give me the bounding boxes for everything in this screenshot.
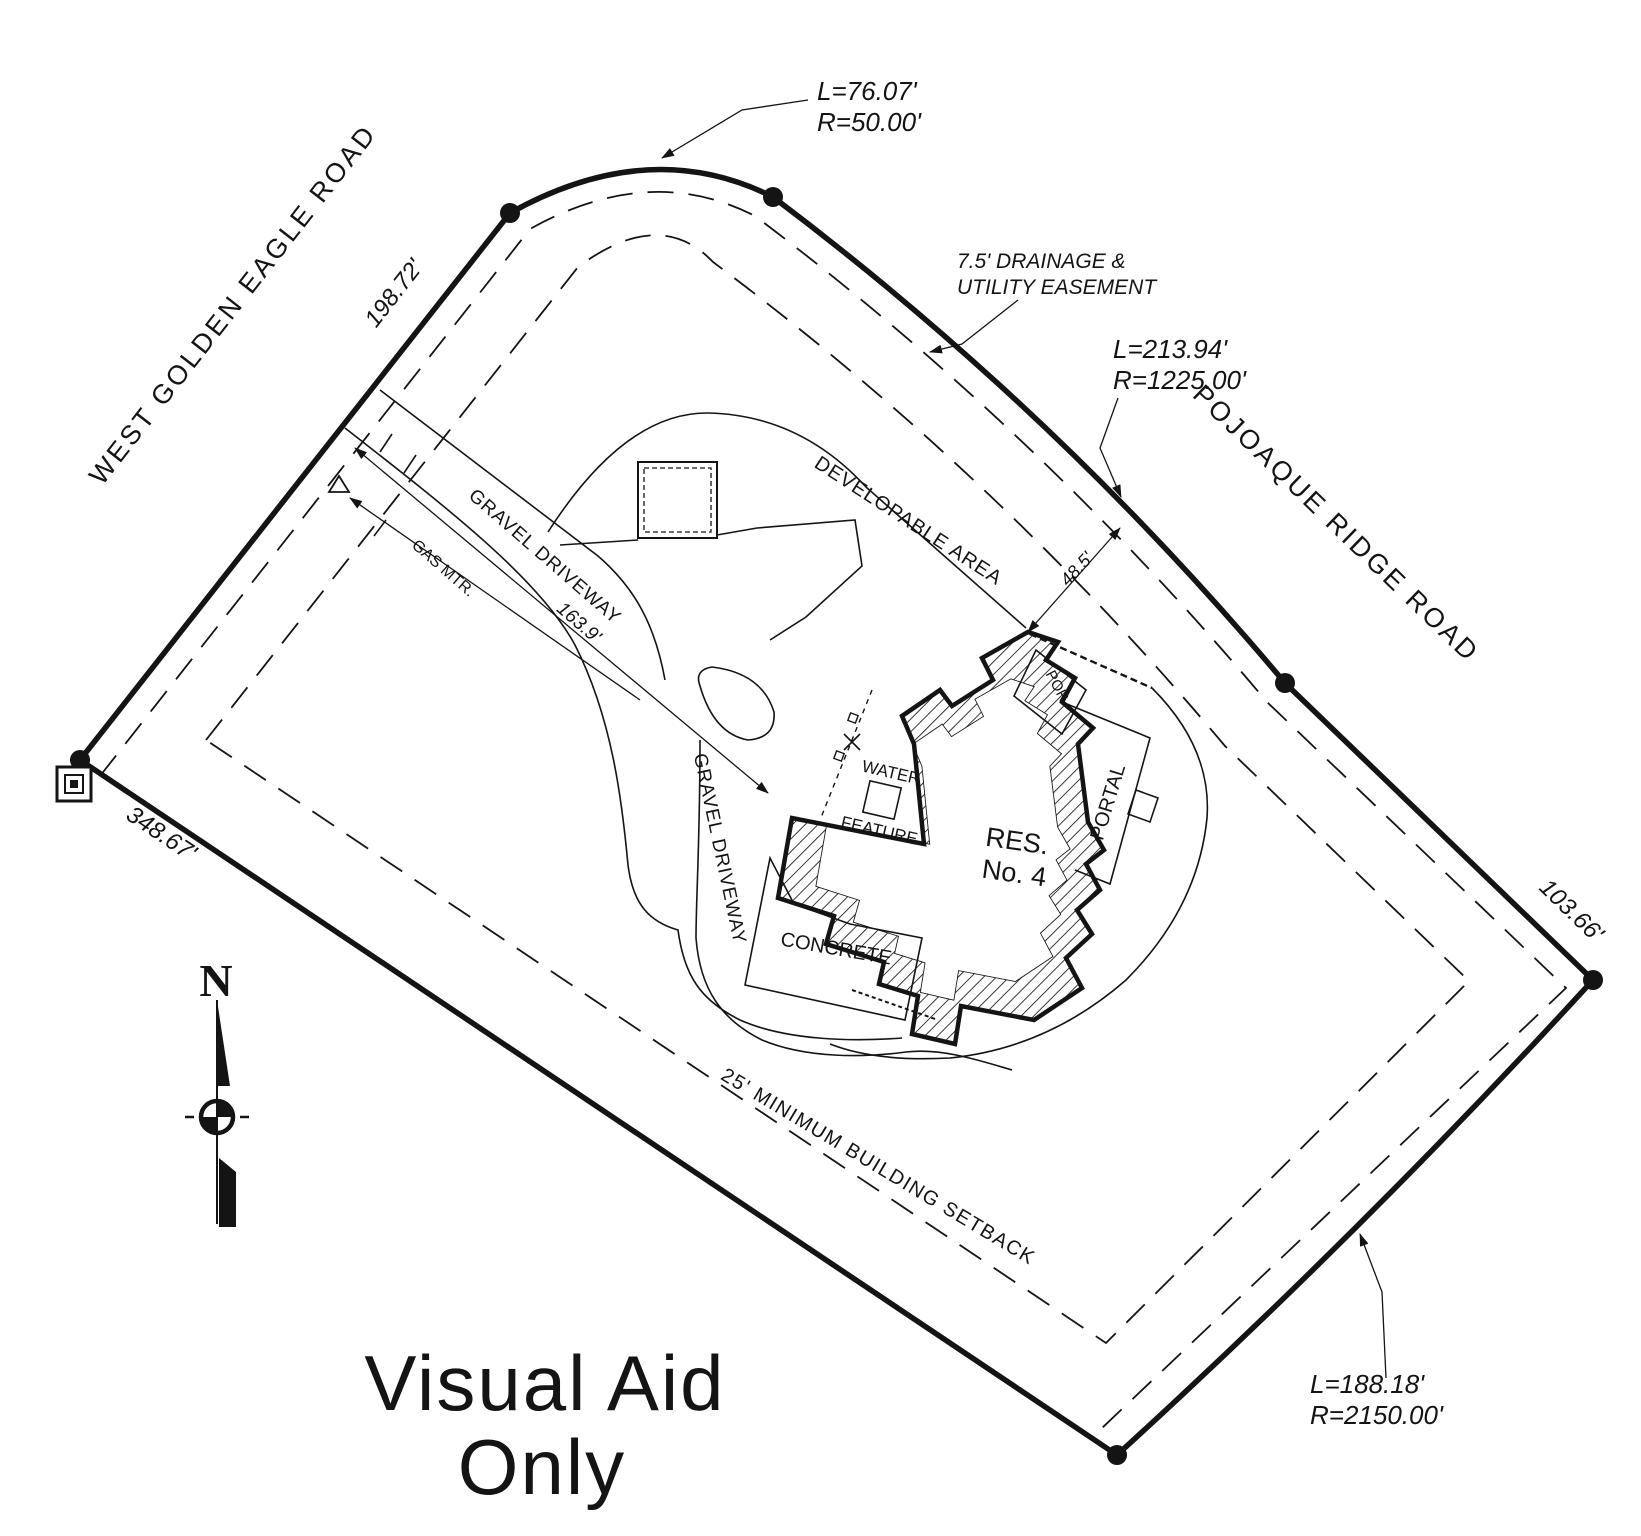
landscape-island xyxy=(699,667,775,740)
curve-southeast-leader xyxy=(1360,1234,1386,1378)
dimension-northwest: 198.72' xyxy=(359,253,429,332)
gas-meter-symbol xyxy=(329,476,349,492)
courtyard-wall xyxy=(638,462,717,538)
utility-line xyxy=(820,690,872,820)
curve-callout-southeast: L=188.18' R=2150.00' xyxy=(1310,1369,1444,1430)
north-label: N xyxy=(199,955,232,1006)
water-feature-basin xyxy=(863,781,901,819)
curve-callout-north: L=76.07' R=50.00' xyxy=(817,76,922,137)
corner-monument-e1 xyxy=(1275,673,1295,693)
site-plan-page: N WEST GOLDEN EAGLE ROAD POJOAQUE RIDGE … xyxy=(0,0,1641,1536)
curve-northeast-radius: R=1225.00' xyxy=(1113,365,1247,395)
corner-monument-n xyxy=(763,187,783,207)
developable-area-line xyxy=(548,413,1026,628)
courtyard-wall-ticks xyxy=(644,468,711,532)
corner-monument-e2 xyxy=(1583,970,1603,990)
curve-north-radius: R=50.00' xyxy=(817,107,922,137)
gas-meter-label: GAS MTR. xyxy=(408,537,478,601)
north-arrow: N xyxy=(185,955,249,1227)
corner-monument-s xyxy=(1107,1445,1127,1465)
portal-bump xyxy=(1128,790,1158,822)
easement-note: 7.5' DRAINAGE & UTILITY EASEMENT xyxy=(957,250,1158,299)
visual-aid-watermark: Visual Aid Only xyxy=(364,1339,725,1511)
curve-north-leader xyxy=(662,100,808,158)
curve-southeast-radius: R=2150.00' xyxy=(1310,1400,1444,1430)
portal-label: PORTAL xyxy=(1086,762,1130,843)
utility-x-mark xyxy=(844,734,860,750)
watermark-line2: Only xyxy=(458,1423,626,1511)
house-offset-dimension-label: 48.5' xyxy=(1056,548,1097,590)
setback-label: 25' MINIMUM BUILDING SETBACK xyxy=(717,1064,1039,1270)
driveway-dim-ticks xyxy=(380,434,416,473)
watermark-line1: Visual Aid xyxy=(364,1339,725,1427)
easement-note-line1: 7.5' DRAINAGE & xyxy=(957,250,1126,273)
easement-note-leader xyxy=(930,300,1018,352)
corner-monument-nw xyxy=(500,203,520,223)
utility-box-1 xyxy=(848,713,858,723)
curve-northeast-length: L=213.94' xyxy=(1113,334,1228,364)
utility-box-2 xyxy=(834,751,844,761)
curve-southeast-length: L=188.18' xyxy=(1310,1369,1425,1399)
residence-label: RES. No. 4 xyxy=(980,822,1050,893)
found-monument-symbol xyxy=(57,767,91,801)
easement-note-line2: UTILITY EASEMENT xyxy=(957,276,1158,299)
property-boundary xyxy=(80,170,1593,1455)
drainage-utility-easement-line xyxy=(100,192,1566,1428)
gas-leader-tick xyxy=(374,520,386,536)
curve-north-length: L=76.07' xyxy=(817,76,918,106)
site-plan-drawing: N WEST GOLDEN EAGLE ROAD POJOAQUE RIDGE … xyxy=(0,0,1641,1536)
curve-callout-northeast: L=213.94' R=1225.00' xyxy=(1113,334,1247,395)
